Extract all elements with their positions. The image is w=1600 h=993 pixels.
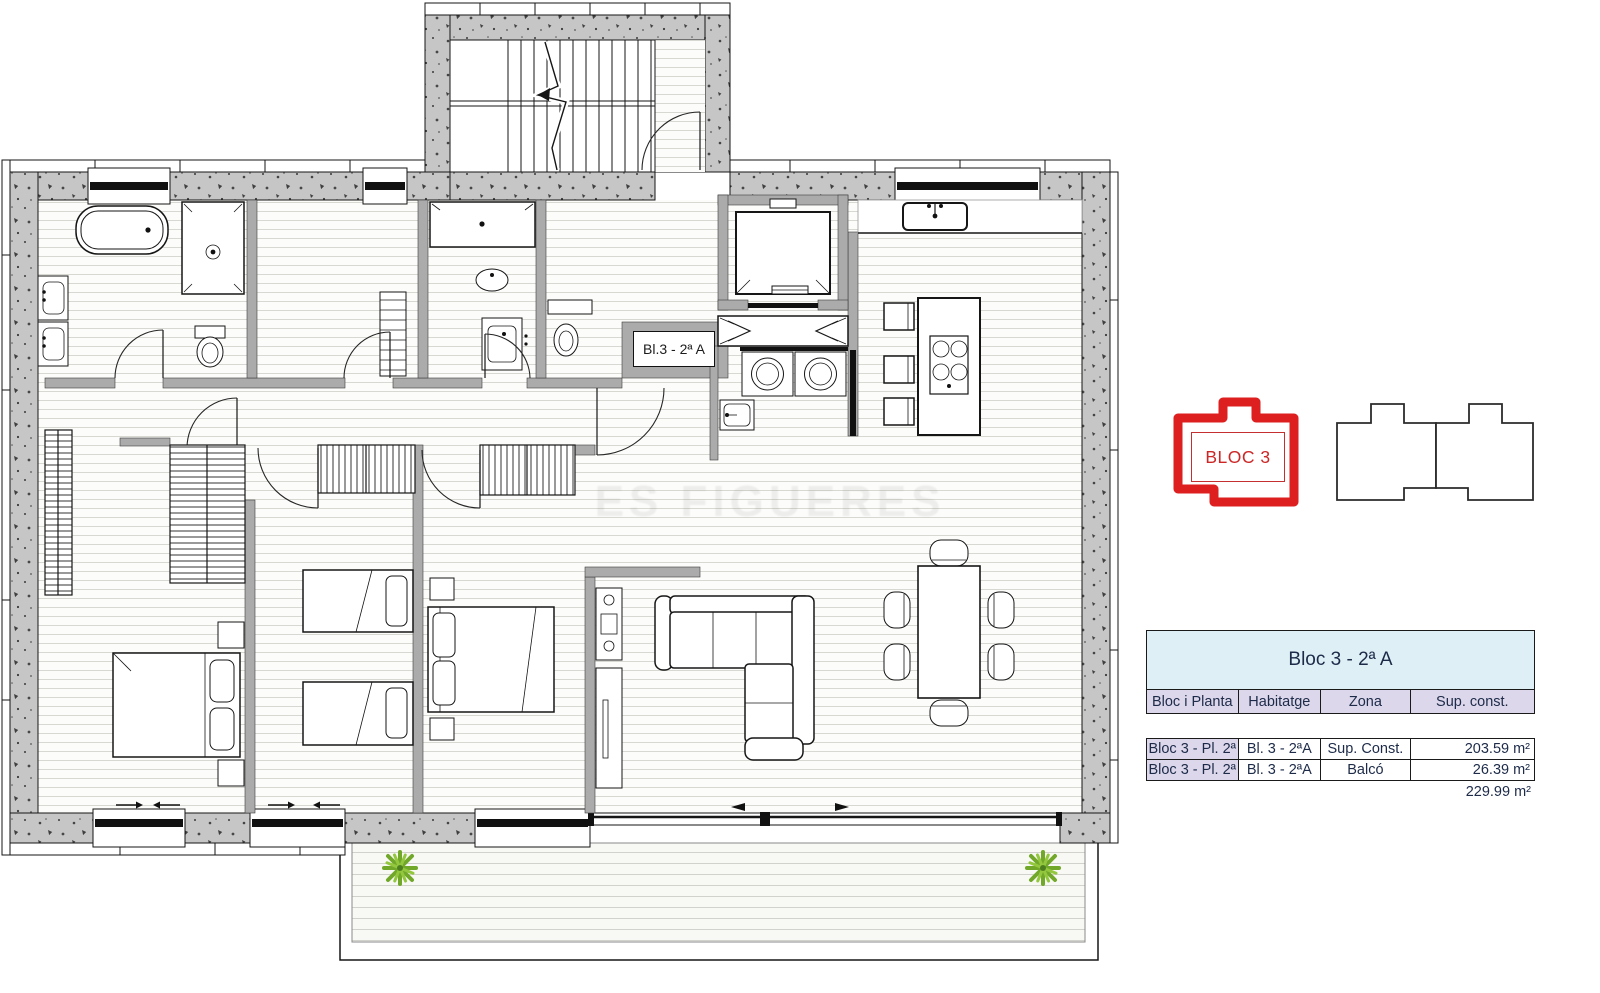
bloc3-badge-label: BLOC 3 [1191, 432, 1285, 482]
toilet [195, 326, 225, 367]
column-header: Zona [1320, 690, 1410, 713]
column-header: Bloc i Planta [1147, 690, 1238, 713]
window [93, 809, 185, 847]
legend-rows: Bloc 3 - Pl. 2ª Bl. 3 - 2ªA Sup. Const. … [1146, 738, 1535, 781]
double-bed [428, 607, 554, 712]
chair [930, 540, 968, 566]
nightstand [430, 578, 454, 600]
column-header: Sup. const. [1410, 690, 1534, 713]
bar-stools [884, 303, 914, 425]
nightstand [218, 622, 244, 648]
sink-oval [476, 269, 508, 291]
wardrobe [318, 445, 415, 493]
key-plan-outline [1337, 404, 1533, 500]
shower [430, 202, 535, 247]
elevator [718, 195, 848, 310]
cell-zona: Sup. Const. [1320, 739, 1410, 759]
surface-legend-table: Bloc 3 - 2ª A Bloc i Planta Habitatge Zo… [1146, 630, 1535, 803]
dining-table [918, 566, 980, 698]
window [363, 168, 407, 204]
wardrobe [45, 430, 72, 595]
legend-columns: Bloc i Planta Habitatge Zona Sup. const. [1147, 689, 1534, 713]
vanity-sink [482, 318, 528, 370]
chair [884, 592, 910, 628]
table-row: Bloc 3 - Pl. 2ª Bl. 3 - 2ªA Balcó 26.39 … [1147, 759, 1534, 780]
nightstand [218, 760, 244, 786]
floorplan-page: ES FIGUERES Bl.3 - 2ª A BLOC 3 Bloc 3 - … [0, 0, 1600, 993]
cell-bloc: Bloc 3 - Pl. 2ª [1147, 739, 1238, 759]
plant-icon [1025, 850, 1061, 886]
media-unit [596, 588, 622, 788]
wardrobe [170, 445, 245, 583]
chair [988, 592, 1014, 628]
window [250, 809, 345, 847]
towel-rack [380, 292, 406, 376]
shower [182, 202, 244, 294]
single-bed [303, 570, 413, 632]
table-row: Bloc 3 - Pl. 2ª Bl. 3 - 2ªA Sup. Const. … [1147, 739, 1534, 759]
legend-title: Bloc 3 - 2ª A [1147, 631, 1534, 689]
legend-header: Bloc 3 - 2ª A Bloc i Planta Habitatge Zo… [1146, 630, 1535, 714]
cell-habitatge: Bl. 3 - 2ªA [1238, 739, 1321, 759]
cell-sup: 203.59 m² [1410, 739, 1534, 759]
watermark: ES FIGUERES [590, 462, 950, 542]
cell-bloc: Bloc 3 - Pl. 2ª [1147, 760, 1238, 780]
kitchen-sink [903, 203, 967, 230]
ventilation-duct [718, 316, 848, 346]
laundry-sink [720, 400, 754, 430]
wardrobe [480, 445, 575, 495]
kitchen-island [918, 298, 980, 435]
single-bed [303, 682, 413, 745]
bathtub [76, 206, 168, 254]
cell-habitatge: Bl. 3 - 2ªA [1238, 760, 1321, 780]
cell-zona: Balcó [1320, 760, 1410, 780]
column-header: Habitatge [1238, 690, 1321, 713]
window [88, 168, 170, 204]
window [895, 168, 1040, 204]
terrace [340, 843, 1098, 960]
plant-icon [382, 850, 418, 886]
chair [988, 644, 1014, 680]
cell-sup: 26.39 m² [1410, 760, 1534, 780]
stairwell [425, 15, 730, 172]
window [475, 809, 590, 847]
chair [930, 700, 968, 726]
double-bed [113, 653, 240, 757]
chair [884, 644, 910, 680]
unit-label: Bl.3 - 2ª A [633, 331, 715, 367]
nightstand [430, 718, 454, 740]
total-surface: 229.99 m² [1146, 781, 1535, 803]
legend-gap [1146, 714, 1535, 738]
